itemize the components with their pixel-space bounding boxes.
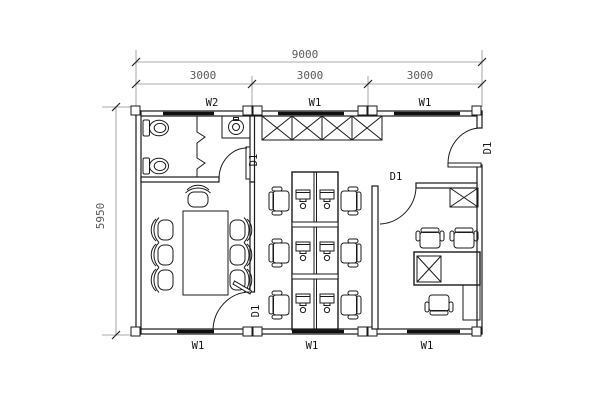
floor-plan-drawing: 9000 3000 3000 3000 5950 <box>0 0 600 400</box>
labels: W2 W1 W1 W1 W1 W1 D1 D1 D1 D1 <box>192 97 494 352</box>
floor-plan-canvas: 9000 3000 3000 3000 5950 <box>0 0 600 400</box>
chair-symbol <box>269 187 289 215</box>
monitor-symbol <box>296 242 310 261</box>
dim-total-height: 5950 <box>94 203 107 230</box>
chair-symbol <box>425 295 453 315</box>
toilet-symbol <box>143 158 169 174</box>
workstations <box>269 172 361 330</box>
office-door-arc <box>380 188 416 224</box>
window-label-bottom-2: W1 <box>306 340 319 352</box>
dim-total-width: 9000 <box>292 48 319 61</box>
monitor-symbol <box>320 190 334 209</box>
sink-symbol <box>222 116 250 138</box>
dimension-lines: 9000 3000 3000 3000 5950 <box>94 48 486 339</box>
window-w1-top-mid <box>278 112 344 115</box>
door-label-meeting: D1 <box>250 305 262 318</box>
monitor-symbol <box>296 190 310 209</box>
chair-symbol <box>416 228 444 248</box>
chair-symbol <box>450 228 478 248</box>
meeting-room <box>151 182 254 331</box>
window-label-top-1: W2 <box>206 97 219 109</box>
entrance-door-arc <box>448 128 481 167</box>
chair-symbol <box>341 239 361 267</box>
toilet-symbol <box>143 120 169 136</box>
monitor-symbol <box>296 294 310 313</box>
door-label-office: D1 <box>390 171 403 183</box>
chair-symbol <box>186 185 211 207</box>
dim-bay-2: 3000 <box>297 69 324 82</box>
window-label-bottom-1: W1 <box>192 340 205 352</box>
window-w1-top-right <box>394 112 460 115</box>
chair-symbol <box>341 291 361 319</box>
toilet-door-arc <box>219 147 250 179</box>
conference-table <box>183 211 228 295</box>
window-w2-top <box>163 112 214 115</box>
dim-bay-1: 3000 <box>190 69 217 82</box>
chair-symbol <box>151 218 173 243</box>
chair-symbol <box>230 243 252 268</box>
cabinet-symbol <box>450 188 478 207</box>
window-w1-bottom-right <box>407 330 460 333</box>
dim-bay-3: 3000 <box>407 69 434 82</box>
monitor-symbol <box>320 242 334 261</box>
chair-symbol <box>151 243 173 268</box>
office-desk <box>414 252 480 320</box>
monitor-symbol <box>320 294 334 313</box>
door-label-entrance: D1 <box>482 142 494 155</box>
window-label-bottom-3: W1 <box>421 340 434 352</box>
chair-symbol <box>341 187 361 215</box>
toilet-area <box>141 116 255 182</box>
chair-symbol <box>269 291 289 319</box>
door-label-toilet: D1 <box>248 154 260 167</box>
office-room <box>372 183 480 329</box>
stall-partition <box>197 116 205 177</box>
window-w1-bottom-left <box>177 330 214 333</box>
window-label-top-2: W1 <box>309 97 322 109</box>
window-label-top-3: W1 <box>419 97 432 109</box>
chair-symbol <box>151 268 173 293</box>
chair-symbol <box>230 218 252 243</box>
chair-symbol <box>269 239 289 267</box>
storage-cabinets <box>262 116 382 140</box>
